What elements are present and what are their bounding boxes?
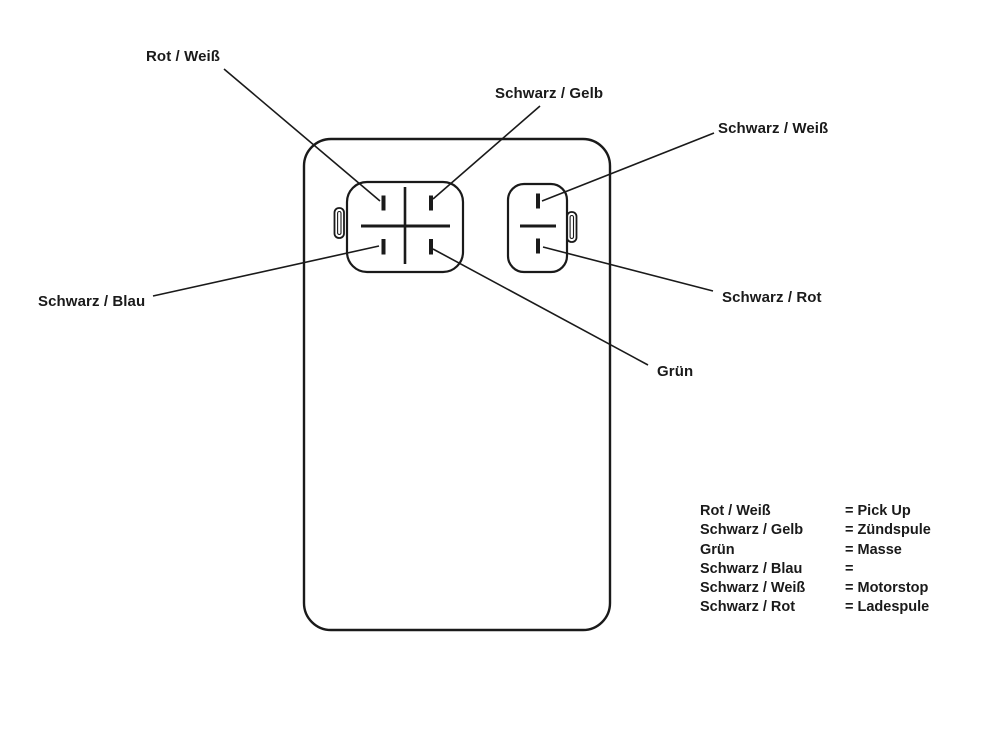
legend-row: Schwarz / Weiß = Motorstop [700, 579, 931, 598]
connector-right [508, 184, 577, 272]
legend-row: Schwarz / Blau = [700, 560, 931, 579]
legend-row: Rot / Weiß = Pick Up [700, 502, 931, 521]
legend-wire: Schwarz / Rot [700, 598, 845, 617]
connector-right-latch [567, 212, 577, 242]
leader-schwarz-weiss [542, 133, 714, 201]
diagram-artwork [0, 0, 1006, 729]
legend-value: = [845, 560, 853, 579]
callout-schwarz-rot: Schwarz / Rot [722, 289, 822, 306]
cdi-body-outline [304, 139, 610, 630]
legend-row: Grün = Masse [700, 541, 931, 560]
leader-schwarz-blau [153, 246, 379, 296]
connector-left-latch [335, 208, 345, 238]
legend-wire: Schwarz / Weiß [700, 579, 845, 598]
connector-left-latch-inner [338, 212, 341, 235]
legend-row: Schwarz / Rot = Ladespule [700, 598, 931, 617]
leader-rot-weiss [224, 69, 380, 201]
callout-schwarz-weiss: Schwarz / Weiß [718, 120, 828, 137]
connector-left [335, 182, 464, 272]
legend-wire: Schwarz / Gelb [700, 521, 845, 540]
legend-value: = Zündspule [845, 521, 931, 540]
legend-wire: Rot / Weiß [700, 502, 845, 521]
leader-schwarz-rot [543, 247, 713, 291]
callout-gruen: Grün [657, 363, 693, 380]
callout-rot-weiss: Rot / Weiß [146, 48, 220, 65]
callout-schwarz-gelb: Schwarz / Gelb [495, 85, 603, 102]
leader-lines [153, 69, 714, 365]
legend-value: = Masse [845, 541, 902, 560]
connector-right-latch-inner [570, 216, 573, 239]
legend-value: = Motorstop [845, 579, 928, 598]
callout-schwarz-blau: Schwarz / Blau [38, 293, 145, 310]
cdi-wiring-diagram: Rot / Weiß Schwarz / Gelb Schwarz / Weiß… [0, 0, 1006, 729]
legend: Rot / Weiß = Pick Up Schwarz / Gelb = Zü… [700, 502, 931, 618]
legend-value: = Pick Up [845, 502, 911, 521]
legend-row: Schwarz / Gelb = Zündspule [700, 521, 931, 540]
legend-wire: Schwarz / Blau [700, 560, 845, 579]
legend-wire: Grün [700, 541, 845, 560]
legend-value: = Ladespule [845, 598, 929, 617]
